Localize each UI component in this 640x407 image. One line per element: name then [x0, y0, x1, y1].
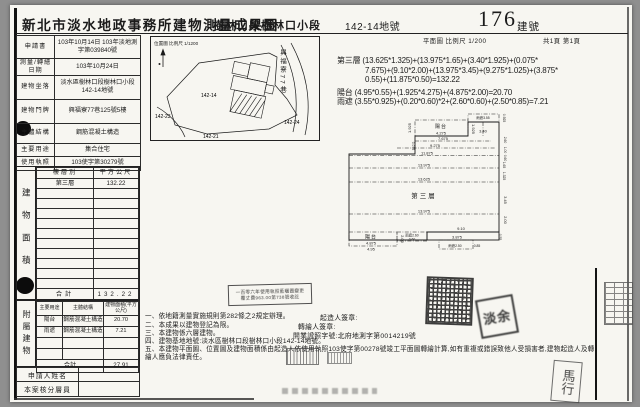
table-cell: 鋼筋混凝土構造	[63, 315, 104, 326]
location-map: 位置圖 比例尺 1/1200	[150, 36, 320, 141]
table-cell: 第三層	[37, 179, 94, 189]
calc-line: 雨遮 (3.55*0.925)+(0.20*0.60)*2+(2.60*0.60…	[337, 97, 633, 107]
column-header: 平方公尺	[94, 168, 139, 179]
info-label: 申請書	[17, 36, 55, 59]
table-cell	[94, 189, 139, 199]
table-header-row: 樓層別 平方公尺	[37, 168, 139, 179]
floor-area-side-label: 建物面積	[17, 167, 36, 299]
building-footprint	[224, 59, 278, 119]
dim-label: 雨遮3.55	[476, 115, 489, 120]
seal-stamp-dense	[425, 276, 474, 326]
table-cell	[104, 337, 139, 348]
table-cell	[37, 259, 94, 269]
column-header: 主要用途	[37, 302, 63, 316]
dim-label: 4.95	[367, 247, 376, 252]
table-row	[37, 259, 139, 269]
table-row: 建物門牌 興福寮77巷125號5樓	[17, 99, 141, 123]
table-row	[37, 189, 139, 199]
table-cell: 鋼筋混凝土構造	[63, 326, 104, 337]
dim-label: 2.00	[503, 216, 508, 225]
table-cell: 陽台	[37, 315, 63, 326]
table-row	[37, 249, 139, 259]
paper-sheet: 新北市淡水地政事務所建物測量成果圖 樹林口段樹林口小段 142-14地號 176…	[10, 5, 632, 402]
table-cell	[63, 337, 104, 348]
dim-label: 1.65	[502, 162, 506, 169]
info-label: 建物坐落	[17, 75, 55, 99]
dim-label: 3.40	[479, 129, 488, 134]
total-row: 合計 132.22	[37, 289, 139, 301]
location-map-drawing: 位置圖 比例尺 1/1200	[151, 37, 318, 139]
footer-fold-mark	[282, 388, 377, 394]
map-scale-text: 位置圖 比例尺 1/1200	[154, 40, 199, 47]
calc-line: 第三層 (13.625*1.325)+(13.975*1.65)+(3.40*1…	[337, 56, 633, 66]
table-row: 測量/轉繪日期 103年10月24日	[17, 59, 141, 76]
transcriber-seal-stamp: 淡余	[475, 294, 519, 339]
table-cell: 7.21	[104, 326, 139, 337]
parcel-label: 142-24	[284, 120, 300, 126]
building-info-table: 申請書 103年10月14日 103年淡地測字第039840號 測量/轉繪日期 …	[16, 35, 141, 171]
page-count-text: 共1頁 第1頁	[543, 36, 580, 45]
annex-side-label: 附屬建物	[17, 301, 36, 366]
applicant-name-label: 申請人姓名	[17, 368, 79, 381]
table-row	[37, 199, 139, 209]
table-cell	[94, 229, 139, 239]
table-header-row: 主要用途 主體結構 建物面積(平方公尺)	[37, 302, 139, 316]
land-section-name: 樹林口段樹林口小段	[213, 17, 321, 33]
parcel-number: 142-14地號	[345, 18, 400, 33]
info-value: 103年10月14日 103年淡地測字第039840號	[55, 36, 141, 59]
dim-label: 0.85	[474, 244, 481, 248]
note-item: 二、本成果以建物登記為限。	[145, 322, 233, 330]
table-cell	[63, 348, 104, 359]
canopy-label: 雨遮2.50	[448, 243, 461, 248]
dim-label: 0.60	[503, 155, 507, 162]
table-row	[37, 269, 139, 279]
table-row	[37, 239, 139, 249]
dim-label: 4.275	[436, 131, 447, 136]
table-row: 建物坐落 淡水區樹林口段樹林口小段142-14地號	[17, 75, 141, 99]
table-row	[37, 348, 139, 359]
dim-label: 0.075	[411, 142, 415, 151]
note-item: 三、本建物係六層建物。	[145, 330, 220, 338]
fee-stamp-line: 覆丈費963.00第738號收訖	[241, 294, 300, 302]
total-label: 合計	[37, 289, 94, 301]
plan-scale-text: 平面圖 比例尺 1/200	[423, 36, 487, 45]
info-value: 鋼筋混凝土構造	[55, 123, 141, 143]
dim-label: 1.00	[503, 147, 507, 154]
table-cell	[37, 348, 63, 359]
small-seal-stamp	[286, 348, 319, 365]
table-cell	[37, 337, 63, 348]
table-row	[37, 337, 139, 348]
info-label: 建物門牌	[17, 99, 55, 123]
table-cell	[94, 259, 139, 269]
calc-line: 0.55)+(11.875*0.50)=132.22	[337, 75, 633, 85]
table-row	[37, 209, 139, 219]
header-divider	[16, 33, 628, 34]
table-row	[37, 219, 139, 229]
fee-receipt-stamp: 一百零六年使用執照藍曬圖變更 覆丈費963.00第738號收訖	[228, 283, 313, 306]
dim-label: 0.60	[409, 238, 416, 242]
table-cell	[94, 209, 139, 219]
info-label: 測量/轉繪日期	[17, 59, 55, 76]
table-row: 申請書 103年10月14日 103年淡地測字第039840號	[17, 36, 141, 59]
handwritten-mark: 馬行	[550, 360, 582, 403]
parcel-label: 142-14	[201, 93, 217, 99]
reviewer-row: 本案核分層員	[16, 382, 140, 397]
table-cell	[94, 199, 139, 209]
note-item: 五、本建物平面圖、位置圖及建物面積係由起造人依使用執照103使字第00278號竣…	[145, 346, 597, 362]
dim-label: 1.925	[407, 122, 412, 133]
table-cell	[94, 279, 139, 289]
table-cell	[94, 269, 139, 279]
table-cell	[37, 219, 94, 229]
parcel-label: 142-23	[155, 114, 171, 120]
table-cell	[94, 239, 139, 249]
table-cell	[37, 249, 94, 259]
calc-line: 陽台 (4.95*0.55)+(1.925*4.275)+(4.875*2.00…	[337, 88, 633, 98]
page-bottom-border	[14, 398, 254, 400]
table-row: 陽台鋼筋混凝土構造20.70	[37, 315, 139, 326]
plan-dimension-lines	[349, 114, 499, 249]
calc-line: 7.675)+(9.10*2.00)+(13.975*3.45)+(9.275*…	[337, 66, 633, 76]
registry-seal-stamp	[604, 282, 633, 325]
total-value: 132.22	[94, 289, 139, 301]
balcony-label: 陽台	[435, 123, 447, 130]
info-value: 103年10月24日	[55, 59, 141, 76]
table-row: 主體結構 鋼筋混凝土構造	[17, 123, 141, 143]
building-number-label: 建號	[517, 19, 540, 34]
table-cell	[94, 249, 139, 259]
column-header: 建物面積(平方公尺)	[104, 302, 139, 316]
info-value: 淡水區樹林口段樹林口小段142-14地號	[55, 75, 141, 99]
dim-label: 9.10	[457, 226, 466, 231]
dim-label: 4.875	[366, 241, 377, 246]
notes-column-divider	[595, 268, 597, 400]
table-row: 第三層132.22	[37, 179, 139, 189]
dim-label: 2.60	[503, 137, 507, 144]
license-number-line: 開業證照字號:北府地測字第0014219號	[293, 330, 416, 340]
table-cell	[37, 239, 94, 249]
table-row	[37, 279, 139, 289]
dim-label: 1.925	[471, 124, 476, 135]
street-name-label: 興福寮77巷	[278, 49, 285, 94]
balcony-label: 陽台	[365, 234, 377, 241]
info-label: 主要用途	[17, 143, 55, 156]
small-seal-stamp	[327, 352, 352, 364]
floor-name-label: 第三層	[411, 191, 437, 200]
plan-labels: 雨遮3.55 0.925 陽台 4.275 1.925 1.925 0.075 …	[365, 114, 508, 252]
info-label: 主體結構	[17, 123, 55, 143]
floor-area-table: 樓層別 平方公尺 第三層132.22 合計 132.22	[36, 167, 139, 301]
info-value: 興福寮77巷125號5樓	[55, 99, 141, 123]
dim-label: 13.975	[418, 209, 431, 214]
table-cell	[37, 209, 94, 219]
dim-label: 11.875	[421, 151, 434, 156]
table-cell: 雨遮	[37, 326, 63, 337]
table-cell	[104, 348, 139, 359]
dim-label: 13.975	[418, 163, 431, 168]
dim-label: 3.875	[452, 235, 463, 240]
north-arrow-icon	[159, 50, 166, 68]
table-cell: 132.22	[94, 179, 139, 189]
table-cell	[37, 189, 94, 199]
table-cell	[37, 229, 94, 239]
dim-label: 0.55	[498, 234, 502, 241]
annex-building-table: 主要用途 主體結構 建物面積(平方公尺) 陽台鋼筋混凝土構造20.70雨遮鋼筋混…	[36, 301, 139, 373]
dim-label: 0.925	[502, 114, 506, 123]
reviewer-label: 本案核分層員	[17, 382, 79, 396]
table-cell	[94, 219, 139, 229]
scanned-survey-document: 新北市淡水地政事務所建物測量成果圖 樹林口段樹林口小段 142-14地號 176…	[0, 0, 640, 407]
table-cell	[37, 199, 94, 209]
column-header: 樓層別	[37, 168, 94, 179]
table-cell	[37, 269, 94, 279]
parcel-label: 142-21	[203, 134, 219, 139]
column-header: 主體結構	[63, 302, 104, 316]
applicant-name-row: 申請人姓名	[16, 367, 140, 382]
dim-label: 9.275	[430, 143, 441, 148]
info-value: 集合住宅	[55, 143, 141, 156]
table-cell: 20.70	[104, 315, 139, 326]
table-cell	[37, 279, 94, 289]
dim-label: 7.675	[438, 136, 449, 141]
floor-area-section: 建物面積 樓層別 平方公尺 第三層132.22 合計 132.22	[16, 166, 140, 300]
dim-label: 3.45	[503, 196, 508, 205]
annex-building-section: 附屬建物 主要用途 主體結構 建物面積(平方公尺) 陽台鋼筋混凝土構造20.70…	[16, 300, 140, 367]
building-number: 176	[478, 6, 517, 32]
note-item: 一、依地籍測量實施規則第282條之2規定辦理。	[145, 313, 290, 321]
dim-label: 2.00	[400, 235, 405, 244]
area-calculations: 第三層 (13.625*1.325)+(13.975*1.65)+(3.40*1…	[337, 56, 633, 107]
table-row: 雨遮鋼筋混凝土構造7.21	[37, 326, 139, 337]
dim-label: 1.325	[502, 172, 506, 181]
table-row: 主要用途 集合住宅	[17, 143, 141, 156]
floor-plan-drawing: 雨遮3.55 0.925 陽台 4.275 1.925 1.925 0.075 …	[331, 110, 513, 268]
table-row	[37, 229, 139, 239]
dim-label: 13.625	[418, 177, 431, 182]
